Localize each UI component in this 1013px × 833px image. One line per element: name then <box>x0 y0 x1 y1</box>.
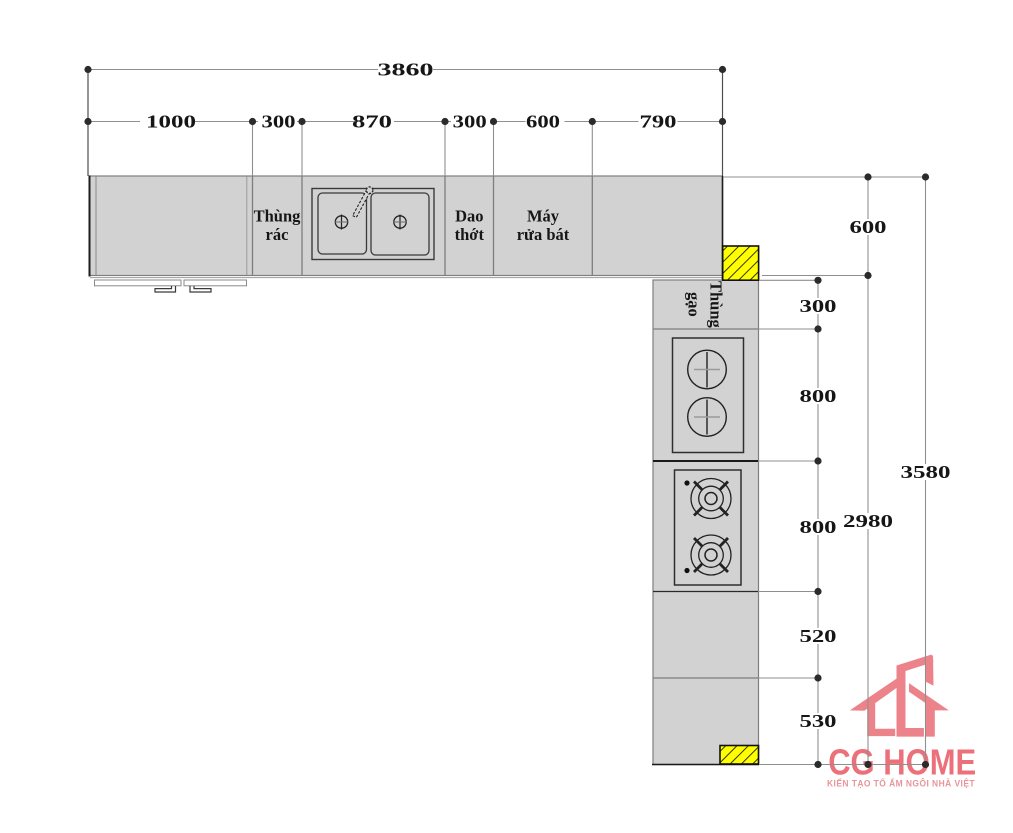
svg-text:KIẾN TẠO TỔ ẤM NGÔI NHÀ VIỆT: KIẾN TẠO TỔ ẤM NGÔI NHÀ VIỆT <box>827 778 975 790</box>
svg-text:300: 300 <box>453 112 487 132</box>
svg-text:870: 870 <box>352 112 392 132</box>
svg-text:300: 300 <box>262 112 296 132</box>
svg-text:3580: 3580 <box>901 462 951 482</box>
svg-text:Máy: Máy <box>527 207 560 226</box>
svg-text:Thùng: Thùng <box>254 207 302 226</box>
svg-text:rác: rác <box>266 225 289 244</box>
svg-text:rửa bát: rửa bát <box>517 225 570 244</box>
svg-text:530: 530 <box>800 711 837 731</box>
svg-text:thớt: thớt <box>455 225 485 244</box>
svg-text:CG HOME: CG HOME <box>828 742 976 783</box>
svg-text:600: 600 <box>526 112 560 132</box>
svg-text:790: 790 <box>640 112 677 132</box>
svg-text:800: 800 <box>800 517 837 537</box>
svg-text:3860: 3860 <box>378 60 434 80</box>
svg-text:520: 520 <box>800 626 837 646</box>
svg-text:300: 300 <box>800 296 837 316</box>
svg-text:2980: 2980 <box>843 511 893 531</box>
svg-text:1000: 1000 <box>146 112 196 132</box>
svg-text:Dao: Dao <box>455 207 483 226</box>
svg-text:800: 800 <box>800 386 837 406</box>
svg-text:600: 600 <box>850 217 887 237</box>
